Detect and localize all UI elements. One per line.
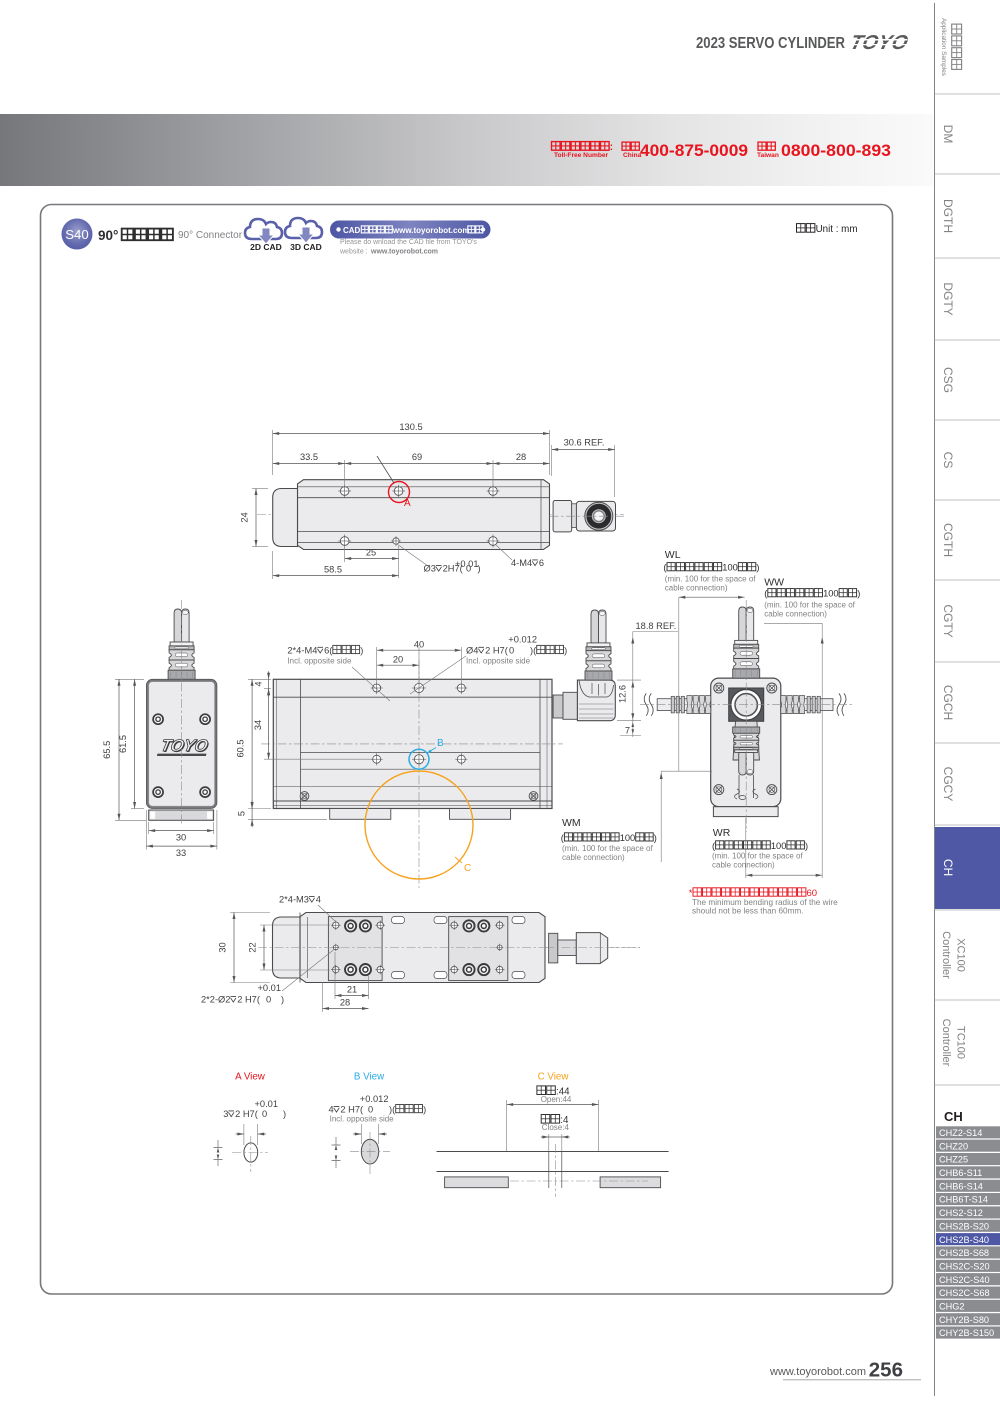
svg-text:Open:44: Open:44 xyxy=(541,1095,572,1104)
svg-text:CHY2B-S150: CHY2B-S150 xyxy=(939,1328,994,1338)
svg-text:C: C xyxy=(464,863,471,874)
svg-text:TOYO: TOYO xyxy=(848,32,910,54)
svg-text:33: 33 xyxy=(176,848,186,858)
svg-text:Please do wnload the CAD file: Please do wnload the CAD file from TOYO'… xyxy=(340,239,477,246)
svg-text:0: 0 xyxy=(466,564,471,574)
svg-text:256: 256 xyxy=(869,1359,903,1382)
svg-text:A: A xyxy=(404,498,411,509)
svg-text:CGCY: CGCY xyxy=(941,767,955,802)
svg-text:CSG: CSG xyxy=(941,367,955,393)
svg-text:(min. 100 for the space of: (min. 100 for the space of xyxy=(712,851,803,860)
svg-text:+0.01: +0.01 xyxy=(258,983,282,993)
svg-text:2023 SERVO CYLINDER: 2023 SERVO CYLINDER xyxy=(696,35,845,52)
svg-text:18.8 REF.: 18.8 REF. xyxy=(636,621,677,631)
svg-text:DGTH: DGTH xyxy=(941,199,955,233)
svg-text:)(: )( xyxy=(530,645,537,655)
svg-text:cable connection): cable connection) xyxy=(562,853,625,862)
svg-text:Toll-Free Number: Toll-Free Number xyxy=(554,152,609,159)
svg-text:website :: website : xyxy=(339,249,368,256)
svg-text:0800-800-893: 0800-800-893 xyxy=(781,141,891,160)
svg-text:2 H7(: 2 H7( xyxy=(235,1109,259,1119)
svg-text:0: 0 xyxy=(266,995,271,1005)
svg-text:4: 4 xyxy=(254,681,264,686)
svg-text:90° Connector: 90° Connector xyxy=(178,230,243,241)
svg-text:CHB6T-S14: CHB6T-S14 xyxy=(939,1195,988,1205)
svg-text:WL: WL xyxy=(665,549,681,561)
svg-text:6(: 6( xyxy=(324,645,333,655)
svg-text:0: 0 xyxy=(509,645,514,655)
svg-text:4: 4 xyxy=(329,1105,334,1115)
svg-text:58.5: 58.5 xyxy=(324,565,342,575)
svg-text:22: 22 xyxy=(248,942,258,952)
svg-text:Ø4: Ø4 xyxy=(466,645,478,655)
svg-text:CHS2-S12: CHS2-S12 xyxy=(939,1208,983,1218)
svg-text:TOYO: TOYO xyxy=(159,736,209,755)
svg-text:61.5: 61.5 xyxy=(118,735,128,753)
svg-text:S40: S40 xyxy=(65,227,88,242)
svg-text:20: 20 xyxy=(393,655,403,665)
svg-text:cable connection): cable connection) xyxy=(665,584,728,593)
svg-text:60.5: 60.5 xyxy=(236,739,246,757)
svg-text:33.5: 33.5 xyxy=(300,452,318,462)
svg-text:Incl. opposite side: Incl. opposite side xyxy=(287,657,352,666)
svg-text:(min. 100 for the space of: (min. 100 for the space of xyxy=(764,601,855,610)
svg-text:www.toyorobot.com: www.toyorobot.com xyxy=(370,249,438,256)
svg-text:China: China xyxy=(623,152,642,159)
svg-text:): ) xyxy=(281,995,284,1005)
svg-text:CGCH: CGCH xyxy=(941,685,955,720)
svg-text:90°: 90° xyxy=(98,228,118,243)
svg-text:CHZ2-S14: CHZ2-S14 xyxy=(939,1128,982,1138)
svg-text:Controller: Controller xyxy=(940,931,952,979)
svg-text::: : xyxy=(610,142,613,153)
svg-text:DM: DM xyxy=(941,125,955,144)
svg-text:0: 0 xyxy=(368,1105,373,1115)
svg-text:CHG2: CHG2 xyxy=(939,1302,965,1312)
svg-text:Application Samples: Application Samples xyxy=(940,18,947,76)
svg-text:CHS2B-S68: CHS2B-S68 xyxy=(939,1248,989,1258)
svg-text:B: B xyxy=(437,738,444,749)
svg-text:130.5: 130.5 xyxy=(399,422,422,432)
svg-text:CS: CS xyxy=(941,452,955,469)
svg-text:CHY2B-S80: CHY2B-S80 xyxy=(939,1315,989,1325)
svg-text:7: 7 xyxy=(625,726,630,736)
svg-text:): ) xyxy=(756,563,759,573)
svg-text:CAD: CAD xyxy=(343,226,361,235)
svg-text:28: 28 xyxy=(516,452,526,462)
svg-text:12.6: 12.6 xyxy=(618,685,628,703)
svg-text:CHS2B-S40: CHS2B-S40 xyxy=(939,1235,989,1245)
svg-text:Ø3: Ø3 xyxy=(424,564,436,574)
svg-text:): ) xyxy=(423,1105,426,1115)
svg-text:2*2-Ø2: 2*2-Ø2 xyxy=(201,995,230,1005)
svg-text:CHS2B-S20: CHS2B-S20 xyxy=(939,1221,989,1231)
svg-text:WM: WM xyxy=(562,817,581,829)
svg-text:400-875-0009: 400-875-0009 xyxy=(640,141,748,160)
svg-text:): ) xyxy=(564,645,567,655)
svg-text:CHZ20: CHZ20 xyxy=(939,1141,968,1151)
svg-text:A View: A View xyxy=(235,1072,266,1083)
svg-text:CHB6-S14: CHB6-S14 xyxy=(939,1181,983,1191)
svg-text:CH: CH xyxy=(944,1109,963,1124)
svg-text:100: 100 xyxy=(823,589,839,599)
svg-text:XC100: XC100 xyxy=(955,938,967,972)
svg-text:24: 24 xyxy=(240,512,250,522)
svg-text:): ) xyxy=(805,841,808,851)
svg-text:WW: WW xyxy=(764,576,784,588)
svg-text:CH: CH xyxy=(941,859,955,876)
svg-text:30: 30 xyxy=(176,833,186,843)
svg-text:TC100: TC100 xyxy=(955,1026,967,1059)
svg-text:65.5: 65.5 xyxy=(102,741,112,759)
svg-text:Unit : mm: Unit : mm xyxy=(816,224,858,235)
svg-text:CGTY: CGTY xyxy=(941,604,955,637)
svg-text:3D CAD: 3D CAD xyxy=(290,242,322,252)
svg-text:WR: WR xyxy=(713,827,731,839)
svg-text:(min. 100 for the space of: (min. 100 for the space of xyxy=(562,844,653,853)
svg-text:30: 30 xyxy=(218,942,228,952)
svg-text:2 H7(: 2 H7( xyxy=(237,995,261,1005)
svg-text:): ) xyxy=(654,833,657,843)
svg-text:5: 5 xyxy=(237,811,247,816)
svg-text:): ) xyxy=(360,645,363,655)
svg-text:CHS2C-S20: CHS2C-S20 xyxy=(939,1262,990,1272)
svg-text:CHS2C-S40: CHS2C-S40 xyxy=(939,1275,990,1285)
svg-text:+0.012: +0.012 xyxy=(360,1094,389,1104)
svg-text:)(: )( xyxy=(389,1105,396,1115)
svg-text:www.toyorobot.com: www.toyorobot.com xyxy=(769,1366,866,1378)
svg-text:should not be less than 60mm.: should not be less than 60mm. xyxy=(692,907,804,916)
svg-text:2*4-M4: 2*4-M4 xyxy=(287,645,317,655)
svg-text:100: 100 xyxy=(771,841,787,851)
svg-text:2*4-M3: 2*4-M3 xyxy=(279,895,309,905)
svg-text:2D CAD: 2D CAD xyxy=(250,242,282,252)
svg-text:cable connection): cable connection) xyxy=(764,610,827,619)
svg-text:3: 3 xyxy=(223,1109,228,1119)
svg-text:2 H7(: 2 H7( xyxy=(340,1105,364,1115)
svg-text:30.6 REF.: 30.6 REF. xyxy=(564,438,605,448)
svg-text:100: 100 xyxy=(722,563,738,573)
svg-text:): ) xyxy=(283,1109,286,1119)
svg-text:21: 21 xyxy=(347,985,357,995)
svg-text:Controller: Controller xyxy=(940,1019,952,1067)
svg-text:Close:4: Close:4 xyxy=(542,1123,570,1132)
svg-text:28: 28 xyxy=(340,998,350,1008)
svg-text:0: 0 xyxy=(262,1109,267,1119)
svg-text:(min. 100 for the space of: (min. 100 for the space of xyxy=(665,575,756,584)
svg-text:40: 40 xyxy=(414,640,424,650)
svg-text:CHB6-S11: CHB6-S11 xyxy=(939,1168,982,1178)
svg-text:): ) xyxy=(857,589,860,599)
svg-text:6: 6 xyxy=(539,558,544,568)
svg-text:Taiwan: Taiwan xyxy=(757,152,779,159)
svg-text:CHS2C-S68: CHS2C-S68 xyxy=(939,1288,990,1298)
svg-text:The minimum bending radius of: The minimum bending radius of the wire xyxy=(692,898,838,907)
svg-text:Incl. opposite side: Incl. opposite side xyxy=(466,657,531,666)
svg-text:25: 25 xyxy=(366,548,376,558)
svg-text:34: 34 xyxy=(253,720,263,730)
svg-text:C View: C View xyxy=(538,1072,570,1083)
svg-text:4: 4 xyxy=(316,895,321,905)
svg-text:+0.012: +0.012 xyxy=(508,635,537,645)
svg-text:+0.01: +0.01 xyxy=(255,1099,279,1109)
svg-text:cable connection): cable connection) xyxy=(712,860,775,869)
svg-text:CGTH: CGTH xyxy=(941,523,955,557)
svg-text:CHZ25: CHZ25 xyxy=(939,1155,968,1165)
svg-text:DGTY: DGTY xyxy=(941,282,955,315)
svg-text:): ) xyxy=(478,564,481,574)
svg-text:2 H7(: 2 H7( xyxy=(485,645,509,655)
svg-text:69: 69 xyxy=(412,452,422,462)
svg-text:100: 100 xyxy=(620,833,636,843)
svg-text:Incl. opposite side: Incl. opposite side xyxy=(330,1115,395,1124)
svg-text:B View: B View xyxy=(354,1072,385,1083)
svg-text:2H7(: 2H7( xyxy=(443,564,464,574)
svg-text:4-M4: 4-M4 xyxy=(511,558,532,568)
svg-text:www.toyorobot.com: www.toyorobot.com xyxy=(392,226,470,235)
